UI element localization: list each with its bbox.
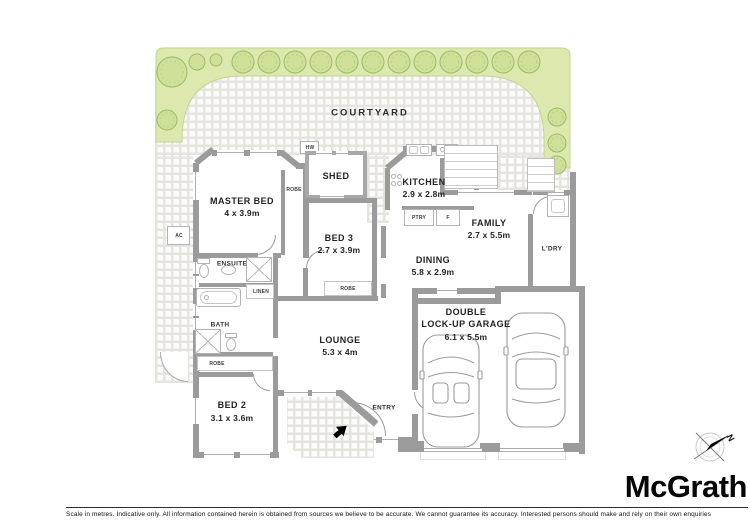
door-arc <box>253 374 270 391</box>
room-label-shed: SHED <box>323 171 350 181</box>
wall <box>193 372 253 377</box>
wall <box>415 288 499 294</box>
robe-label: ROBE <box>340 286 355 292</box>
fridge-label: F <box>446 215 449 221</box>
room-dims-master: 4 x 3.9m <box>224 208 259 218</box>
room-dims-kitchen: 2.9 x 2.8m <box>403 189 446 199</box>
shower-icon <box>246 257 272 282</box>
pantry-label: PTRY <box>412 215 426 221</box>
room-label-garage-1: DOUBLE <box>446 307 487 317</box>
window <box>204 452 234 458</box>
footer-disclaimer: Scale in metres. Indicative only. All in… <box>66 511 748 518</box>
cooktop-icon <box>391 181 396 186</box>
cooktop-icon <box>391 174 396 179</box>
room-label-kitchen: KITCHEN <box>402 177 445 187</box>
floorplan-page: COURTYARD <box>0 0 750 530</box>
room-label-bed2: BED 2 <box>218 400 247 410</box>
sliding-door <box>458 190 514 195</box>
wall <box>303 198 308 250</box>
room-dims-bed3: 2.7 x 3.9m <box>318 245 361 255</box>
compass-icon: N <box>686 420 738 472</box>
wall <box>381 284 386 298</box>
window <box>193 276 199 288</box>
window <box>250 150 277 156</box>
window <box>240 452 270 458</box>
robe-label: ROBE <box>209 361 224 367</box>
linen-label: LINEN <box>253 289 269 295</box>
robe-label: ROBE <box>286 187 301 193</box>
room-label-bed3: BED 3 <box>325 233 354 243</box>
car-icon <box>504 313 568 427</box>
room-dims-dining: 5.8 x 2.9m <box>412 267 455 277</box>
room-dims-family: 2.7 x 5.5m <box>468 230 511 240</box>
ac-label: AC <box>175 233 183 239</box>
cooktop-icon <box>397 181 402 186</box>
room-dims-garage: 6.1 x 5.5m <box>445 332 488 342</box>
window <box>437 288 457 294</box>
window <box>193 172 199 200</box>
room-label-lounge: LOUNGE <box>319 335 360 345</box>
wall <box>273 356 278 458</box>
laundry-tub-inner <box>551 199 565 213</box>
room-dims-bed2: 3.1 x 3.6m <box>211 413 254 423</box>
wall <box>278 296 378 301</box>
room-label-master: MASTER BED <box>210 196 274 206</box>
wall <box>528 214 533 290</box>
room-label-entry: ENTRY <box>372 405 395 412</box>
room-label-family: FAMILY <box>472 218 507 228</box>
toilet-icon <box>199 264 209 278</box>
window <box>382 437 398 443</box>
shower-icon <box>195 329 221 354</box>
cooktop-icon <box>397 174 402 179</box>
wall <box>372 198 377 301</box>
brand-logo: McGrath <box>625 469 747 505</box>
window <box>217 150 244 156</box>
footer-rule <box>66 507 748 508</box>
sink-bowl <box>409 146 418 154</box>
room-dims-lounge: 5.3 x 4m <box>322 347 357 357</box>
wall <box>570 172 576 292</box>
window <box>284 390 308 396</box>
window <box>316 151 332 155</box>
courtyard-paving-left <box>155 155 193 383</box>
room-label-ensuite: ENSUITE <box>217 261 247 268</box>
car-icon <box>420 335 482 447</box>
room-label-laundry: L'DRY <box>542 246 563 253</box>
exterior-steps <box>527 158 555 192</box>
wall <box>385 168 390 210</box>
wall <box>303 198 377 203</box>
room-label-dining: DINING <box>416 255 450 265</box>
window <box>336 151 348 155</box>
sink-bowl <box>420 146 429 154</box>
window <box>312 390 336 396</box>
door-arc <box>256 235 276 255</box>
room-label-garage-2: LOCK-UP GARAGE <box>421 319 510 329</box>
drain-icon <box>204 295 209 300</box>
wall <box>281 170 285 255</box>
wall <box>412 298 499 304</box>
window <box>193 398 199 424</box>
wall <box>499 286 585 292</box>
deck-steps <box>444 145 498 189</box>
wall <box>381 226 386 258</box>
compass-north-label: N <box>725 433 737 443</box>
room-label-bath: BATH <box>211 322 230 329</box>
toilet-icon <box>226 338 236 351</box>
